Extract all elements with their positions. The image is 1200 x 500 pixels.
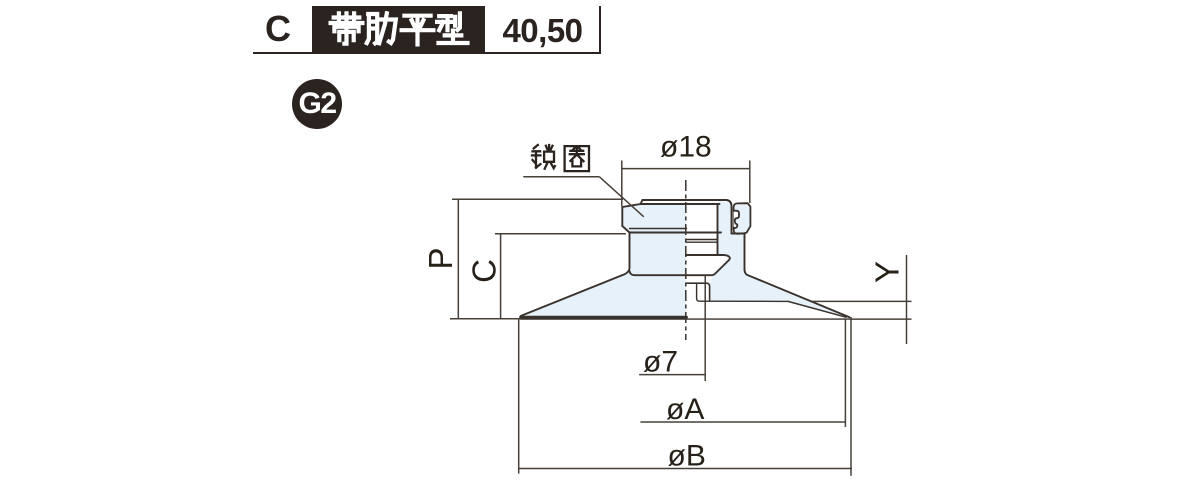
svg-text:øA: øA [666,393,704,426]
svg-text:ø7: ø7 [643,346,678,379]
svg-text:C: C [466,259,503,283]
svg-text:ø18: ø18 [660,130,712,163]
svg-text:Y: Y [869,261,906,283]
svg-text:P: P [422,247,459,269]
svg-text:øB: øB [668,440,706,473]
